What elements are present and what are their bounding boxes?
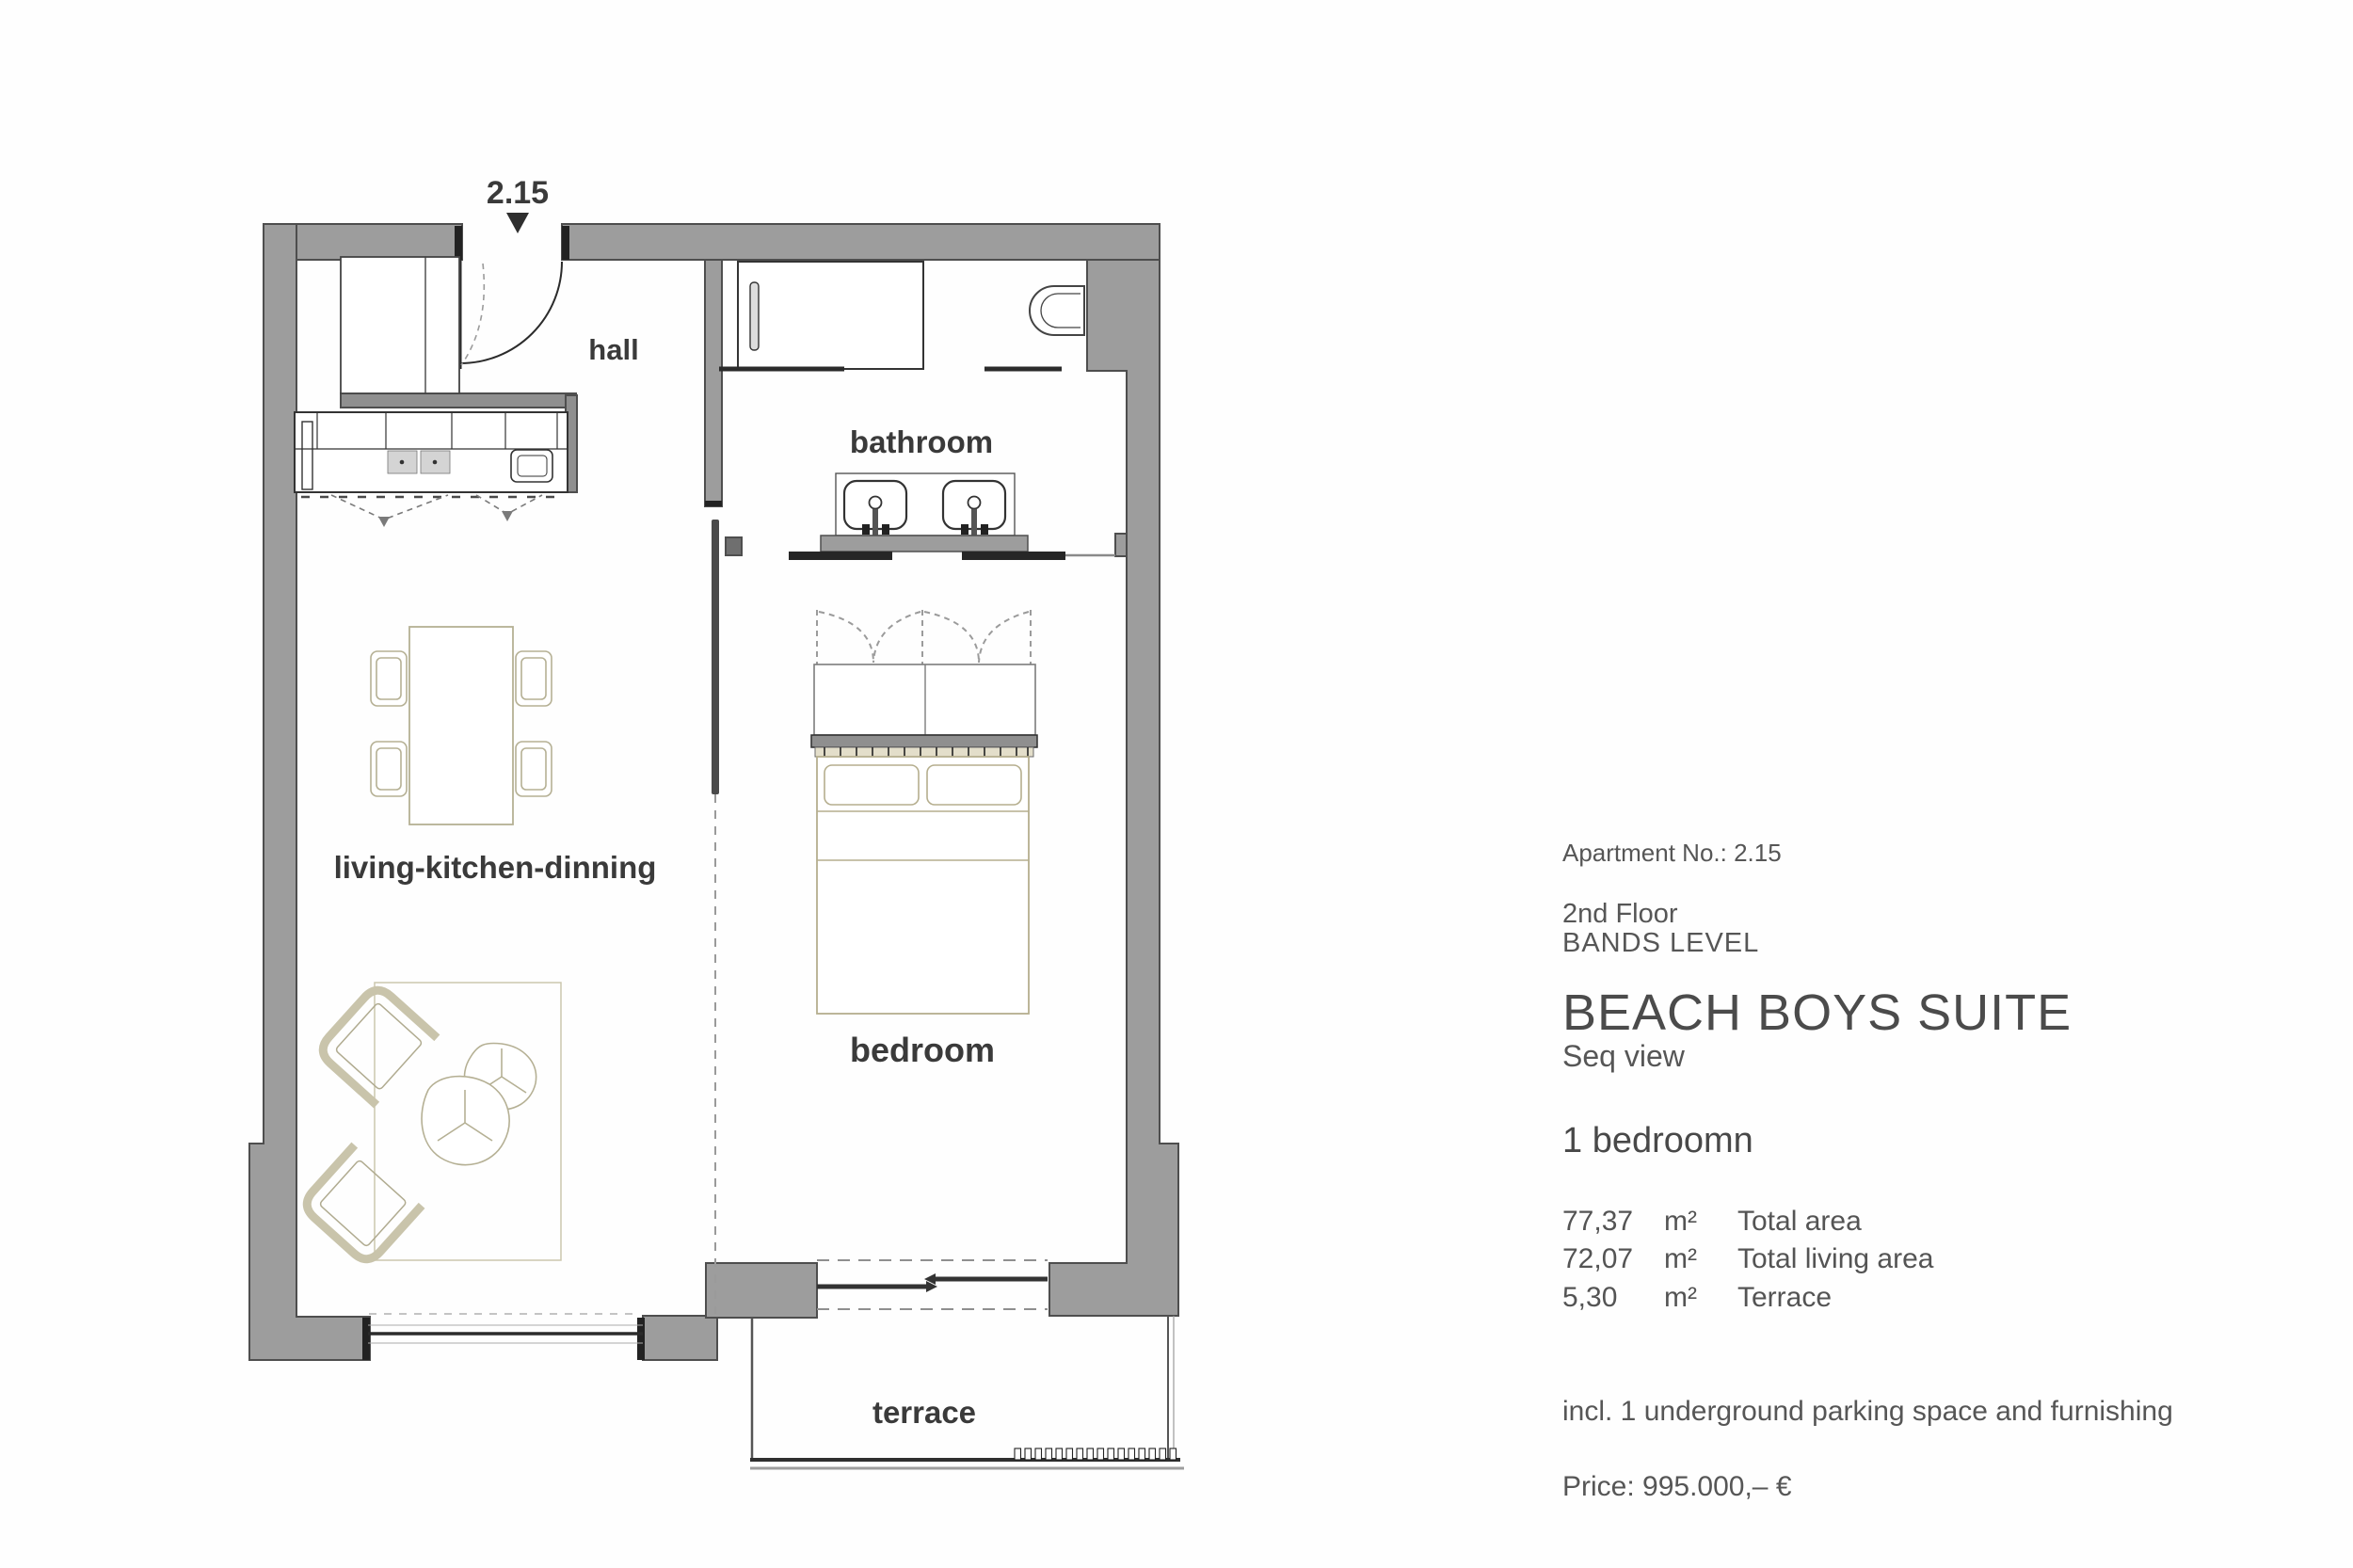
wall-partition-stub	[726, 537, 742, 555]
headboard	[811, 735, 1037, 747]
apartment-number-text: Apartment No.: 2.15	[1562, 839, 1782, 868]
suite-name-title: BEACH BOYS SUITE	[1562, 984, 2072, 1042]
dining-set	[371, 627, 552, 824]
area-label: Total living area	[1737, 1243, 1933, 1275]
floor-text: 2nd Floor	[1562, 899, 1678, 930]
hall-closet	[341, 257, 459, 393]
bedroom-count-text: 1 bedroomn	[1562, 1121, 1753, 1161]
shower	[719, 262, 923, 369]
area-label: Terrace	[1737, 1282, 1832, 1314]
bedroom-wardrobe	[814, 610, 1035, 735]
area-value: 72,07	[1562, 1243, 1664, 1275]
area-unit: m²	[1664, 1243, 1737, 1275]
room-label-terrace: terrace	[872, 1395, 976, 1430]
dining-table	[409, 627, 513, 824]
armchair-2	[300, 1145, 422, 1266]
room-label-bedroom: bedroom	[850, 1031, 995, 1069]
armchair-1	[316, 984, 437, 1105]
level-text: BANDS LEVEL	[1562, 928, 1759, 959]
area-row-living: 72,07 m² Total living area	[1562, 1243, 1933, 1275]
living-window	[368, 1314, 643, 1343]
area-label: Total area	[1737, 1206, 1862, 1238]
room-label-living: living-kitchen-dinning	[334, 850, 657, 885]
coffee-tables	[422, 1043, 536, 1164]
unit-number-marker: 2.15	[487, 175, 549, 233]
toilet-icon	[1030, 286, 1084, 335]
area-value: 5,30	[1562, 1282, 1664, 1314]
floor-plan: 2.15	[0, 0, 1271, 1568]
area-unit: m²	[1664, 1282, 1737, 1314]
sliding-door	[712, 520, 719, 1314]
shower-handle	[750, 282, 759, 350]
view-text: Seq view	[1562, 1039, 1685, 1074]
vanity-double-sink	[789, 473, 1115, 560]
room-label-bathroom: bathroom	[850, 424, 993, 459]
wall-bottom-mid	[643, 1316, 717, 1360]
wall-closet-south	[341, 393, 576, 408]
vanity-counter	[821, 536, 1028, 552]
terrace-outline	[750, 1316, 1184, 1468]
wall-partition-notch	[1115, 534, 1127, 556]
area-row-total: 77,37 m² Total area	[1562, 1206, 1862, 1238]
price-text: Price: 995.000,– €	[1562, 1471, 1792, 1503]
unit-number-label: 2.15	[487, 175, 549, 211]
page: 2.15	[0, 0, 2353, 1568]
wall-right	[1049, 260, 1178, 1316]
wall-divider	[705, 260, 722, 506]
wall-terrace-pier	[706, 1263, 817, 1318]
lounge-area	[300, 983, 561, 1266]
includes-text: incl. 1 underground parking space and fu…	[1562, 1396, 2173, 1428]
bed	[811, 735, 1037, 1014]
area-value: 77,37	[1562, 1206, 1664, 1238]
area-row-terrace: 5,30 m² Terrace	[1562, 1282, 1832, 1314]
kitchen-counter	[295, 412, 568, 527]
wall-top-right	[562, 224, 1160, 260]
terrace-door	[817, 1260, 1048, 1309]
cabinet-swing-arrows	[331, 495, 542, 520]
room-label-hall: hall	[588, 333, 638, 366]
area-unit: m²	[1664, 1206, 1737, 1238]
entry-arrow-icon	[506, 213, 529, 233]
